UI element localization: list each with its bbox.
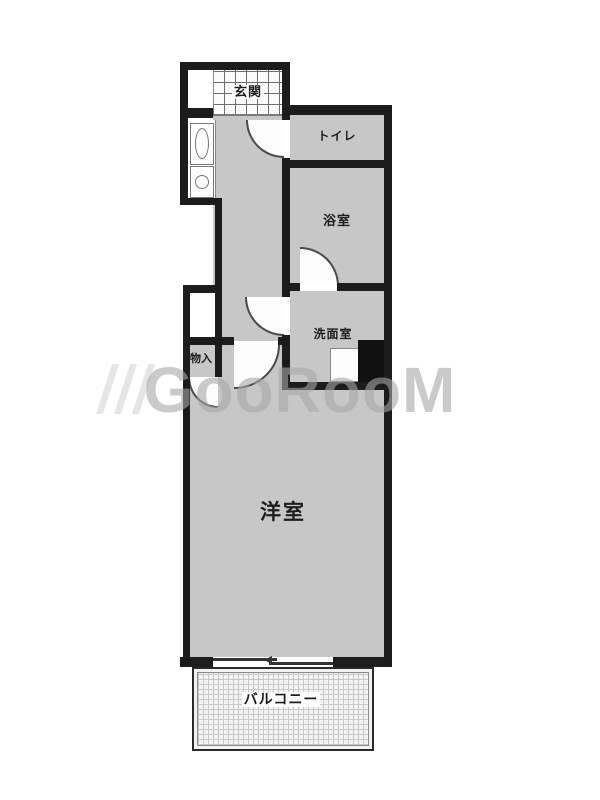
wall-right-outer bbox=[384, 105, 392, 667]
wall-left-upper bbox=[180, 62, 188, 205]
room-label-washroom: 洗面室 bbox=[288, 328, 378, 341]
shoe-cabinet bbox=[188, 70, 214, 108]
room-label-genkan: 玄関 bbox=[216, 85, 280, 99]
floorplan-canvas: 玄関 トイレ 浴室 洗面室 物入 洋室 バルコニー GooRooM bbox=[0, 0, 600, 800]
room-label-toilet: トイレ bbox=[290, 130, 384, 143]
room-label-western-room: 洋室 bbox=[233, 501, 333, 524]
wall-left-indent bbox=[215, 198, 222, 293]
genkan-step-line bbox=[213, 114, 282, 116]
genkan-label-text: 玄関 bbox=[232, 85, 264, 99]
watermark-logo-stroke bbox=[96, 364, 119, 414]
sink-basin-icon bbox=[195, 128, 209, 159]
balcony-grid bbox=[197, 672, 369, 746]
wall-center-seg2 bbox=[282, 158, 290, 297]
pipe-space bbox=[358, 340, 384, 384]
void-nook bbox=[190, 293, 215, 337]
balcony-label-text: バルコニー bbox=[242, 692, 321, 707]
window-arrow-icon bbox=[264, 656, 272, 664]
wall-toilet-bath bbox=[290, 160, 384, 168]
wall-hall-bottom-left bbox=[215, 337, 234, 345]
stove-fixture bbox=[190, 166, 214, 198]
watermark-logo-stroke bbox=[114, 364, 137, 414]
kitchen-sink-fixture bbox=[190, 123, 214, 165]
wall-bath-wash-left bbox=[290, 283, 300, 291]
balcony-window-pane-right bbox=[269, 662, 333, 665]
room-label-closet: 物入 bbox=[184, 353, 218, 365]
washroom-label-text: 洗面室 bbox=[313, 327, 352, 341]
closet-label-text: 物入 bbox=[190, 353, 212, 365]
wall-shoebox-stub bbox=[183, 108, 213, 118]
stove-burner-icon bbox=[195, 175, 209, 189]
wall-bottom-left bbox=[180, 657, 213, 667]
wall-top bbox=[180, 62, 290, 70]
wall-toilet-top bbox=[282, 105, 392, 115]
watermark-logo bbox=[89, 360, 168, 418]
wall-left-lower bbox=[183, 285, 190, 667]
bath-label-text: 浴室 bbox=[323, 213, 351, 228]
wall-bath-wash-right bbox=[337, 283, 384, 291]
western-room-label-text: 洋室 bbox=[260, 501, 306, 524]
balcony-area bbox=[192, 667, 374, 751]
room-label-bath: 浴室 bbox=[290, 214, 384, 228]
room-label-balcony: バルコニー bbox=[192, 692, 370, 707]
watermark-logo-stroke bbox=[132, 364, 155, 414]
toilet-label-text: トイレ bbox=[317, 129, 356, 143]
wall-bottom-right bbox=[333, 657, 392, 667]
wall-wash-bottom bbox=[282, 382, 384, 390]
